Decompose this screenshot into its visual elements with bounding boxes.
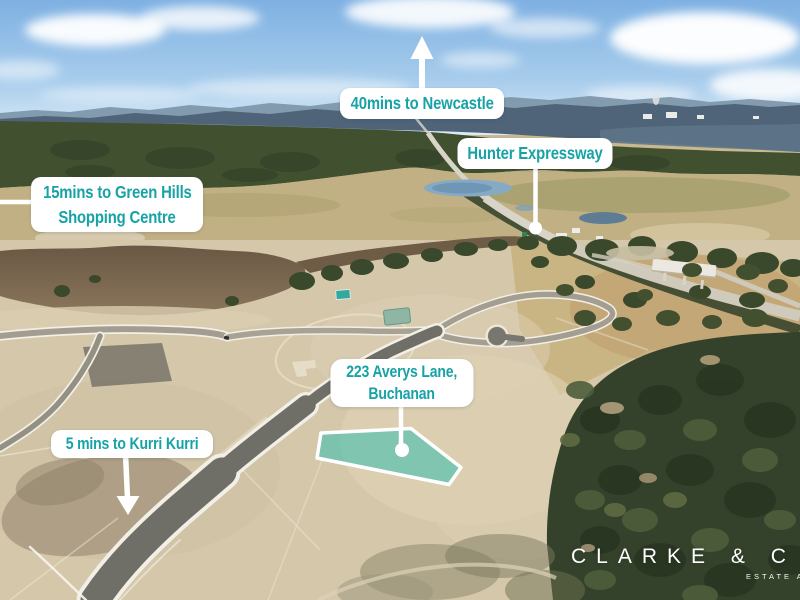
callout-property-address: 223 Averys Lane, Buchanan xyxy=(331,359,474,407)
agency-tagline: ESTATE A xyxy=(746,572,800,581)
callout-newcastle-text: 40mins to Newcastle xyxy=(350,93,493,114)
green-roof-building xyxy=(383,308,410,326)
callout-newcastle: 40mins to Newcastle xyxy=(340,88,504,119)
agency-logo: CLARKE & C xyxy=(571,545,796,569)
callout-hunter-expressway: Hunter Expressway xyxy=(458,138,613,169)
callout-kurri-text: 5 mins to Kurri Kurri xyxy=(66,435,199,454)
property-pointer-dot xyxy=(395,443,409,457)
callout-hunter-text: Hunter Expressway xyxy=(467,143,602,164)
callout-property-line2: Buchanan xyxy=(369,383,435,405)
callout-property-line1: 223 Averys Lane, xyxy=(347,361,458,383)
callout-green-hills-line2: Shopping Centre xyxy=(58,205,175,230)
hunter-pointer-dot xyxy=(529,222,542,235)
aerial-property-photo: 40mins to Newcastle Hunter Expressway 15… xyxy=(0,0,800,600)
callout-green-hills: 15mins to Green Hills Shopping Centre xyxy=(31,177,203,232)
callout-kurri-kurri: 5 mins to Kurri Kurri xyxy=(51,430,213,458)
teal-shed xyxy=(336,290,351,300)
smoke-plume xyxy=(653,91,660,105)
callout-green-hills-line1: 15mins to Green Hills xyxy=(43,180,192,205)
